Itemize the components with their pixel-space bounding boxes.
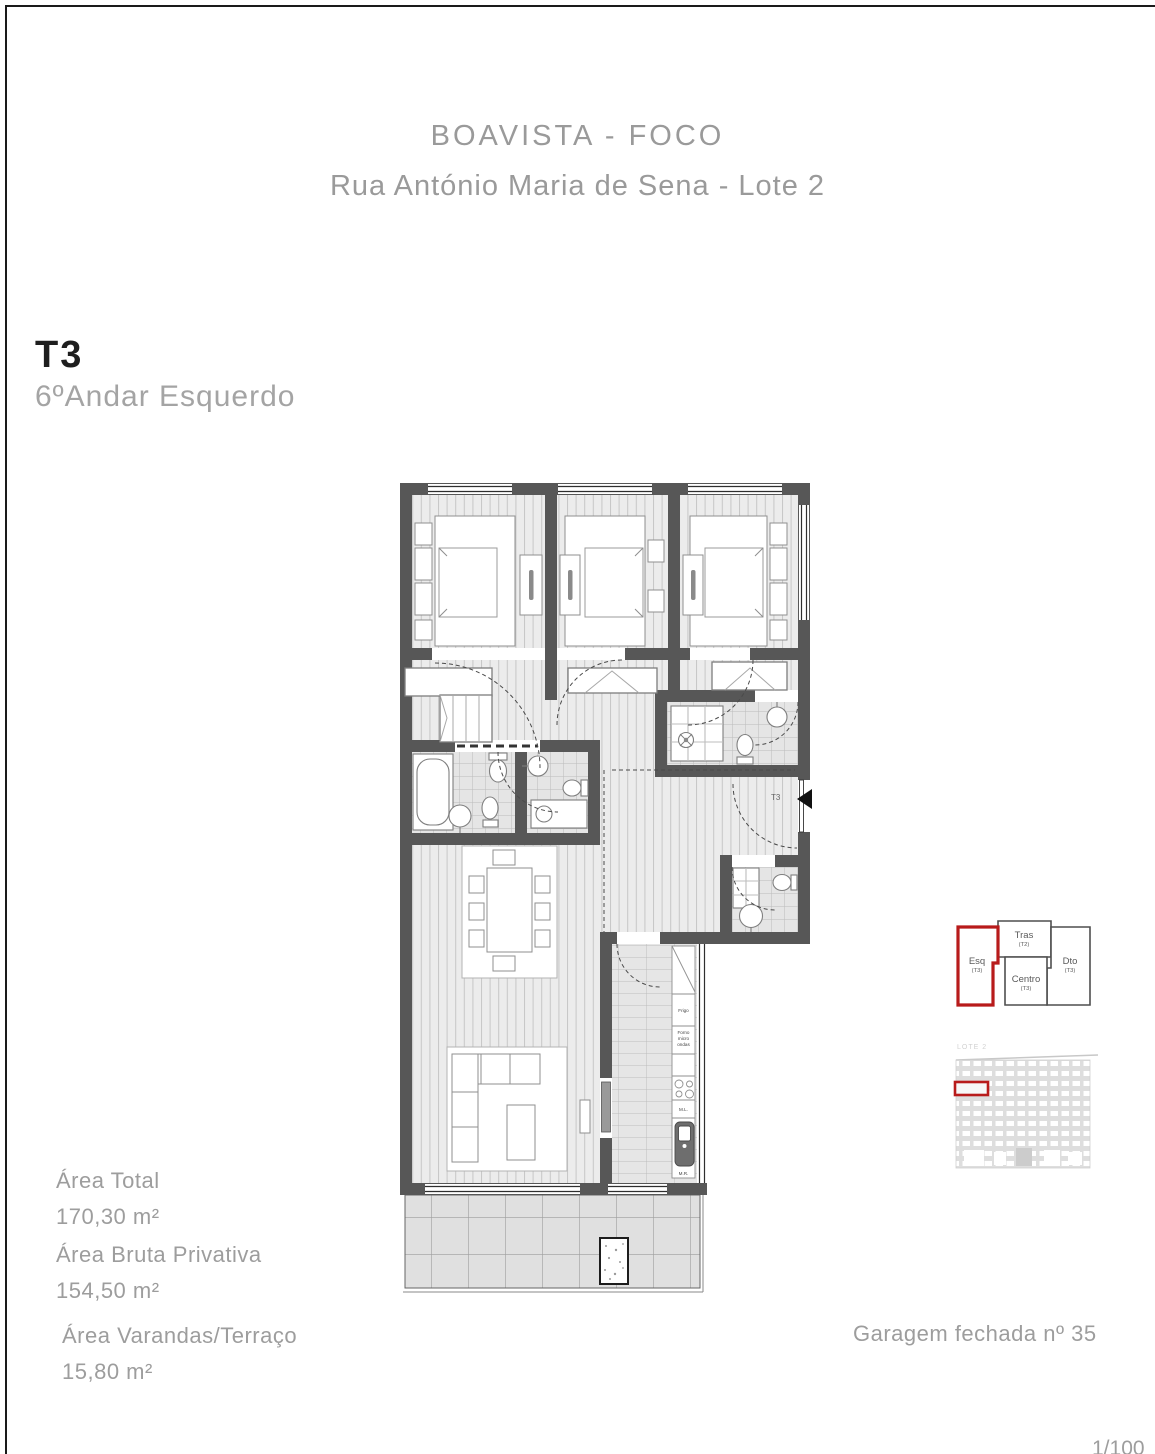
sliding-door-kitchen [602, 1082, 611, 1132]
kitchen-oven-label-1: Forno [677, 1030, 689, 1035]
area-total-label: Área Total [56, 1166, 160, 1195]
project-title: BOAVISTA - FOCO [0, 120, 1155, 153]
garage-label: Garagem fechada nº 35 [853, 1321, 1097, 1347]
locator-tras-type: (T2) [1019, 942, 1030, 948]
elevation-lot-label: LOTE 2 [957, 1044, 987, 1051]
area-total-value: 170,30 m² [56, 1202, 160, 1231]
building-elevation-diagram: LOTE 2 [950, 1038, 1102, 1178]
locator-dto-type: (T3) [1065, 968, 1076, 974]
entrance-unit-label: T3 [771, 793, 781, 802]
floor-plan-sheet: BOAVISTA - FOCO Rua António Maria de Sen… [0, 0, 1155, 1454]
area-gross-private-value: 154,50 m² [56, 1276, 262, 1305]
terrace-column [600, 1238, 628, 1284]
dining-area [462, 846, 557, 978]
area-gross-private-label: Área Bruta Privativa [56, 1240, 262, 1269]
area-gross-private: Área Bruta Privativa 154,50 m² [56, 1240, 262, 1305]
floor-plan-drawing: Frigo Forno micro ondas M.L. M.R. [395, 478, 820, 1318]
project-address: Rua António Maria de Sena - Lote 2 [0, 170, 1155, 203]
locator-esq-label: Esq [969, 956, 985, 967]
floor-locator-diagram: Esq (T3) Tras (T2) Dto (T3) Centro (T3) [950, 905, 1110, 1017]
area-total: Área Total 170,30 m² [56, 1166, 160, 1231]
locator-centro-type: (T3) [1021, 986, 1032, 992]
unit-type-label: T3 [35, 334, 83, 377]
unit-floor-label: 6ºAndar Esquerdo [35, 380, 295, 414]
scale-label: 1/100 [1092, 1437, 1145, 1454]
kitchen-oven-label-3: ondas [677, 1042, 690, 1047]
kitchen-fridge-label: Frigo [678, 1008, 689, 1013]
kitchen-units: Frigo Forno micro ondas M.L. M.R. [672, 946, 695, 1178]
area-balconies-value: 15,80 m² [62, 1357, 297, 1386]
locator-esq-type: (T3) [972, 968, 983, 974]
kitchen-mr-label: M.R. [679, 1171, 689, 1176]
kitchen-washer-label: M.L. [679, 1107, 688, 1112]
elevation-roofline [956, 1055, 1098, 1060]
locator-dto-label: Dto [1063, 956, 1078, 967]
kitchen-oven-label-2: micro [678, 1036, 690, 1041]
elevation-unit-highlight [955, 1082, 988, 1095]
area-balconies: Área Varandas/Terraço 15,80 m² [62, 1321, 297, 1386]
sink-icon [675, 1122, 694, 1166]
area-balconies-label: Área Varandas/Terraço [62, 1321, 297, 1350]
locator-tras-label: Tras [1015, 930, 1034, 941]
locator-centro-label: Centro [1012, 974, 1041, 985]
